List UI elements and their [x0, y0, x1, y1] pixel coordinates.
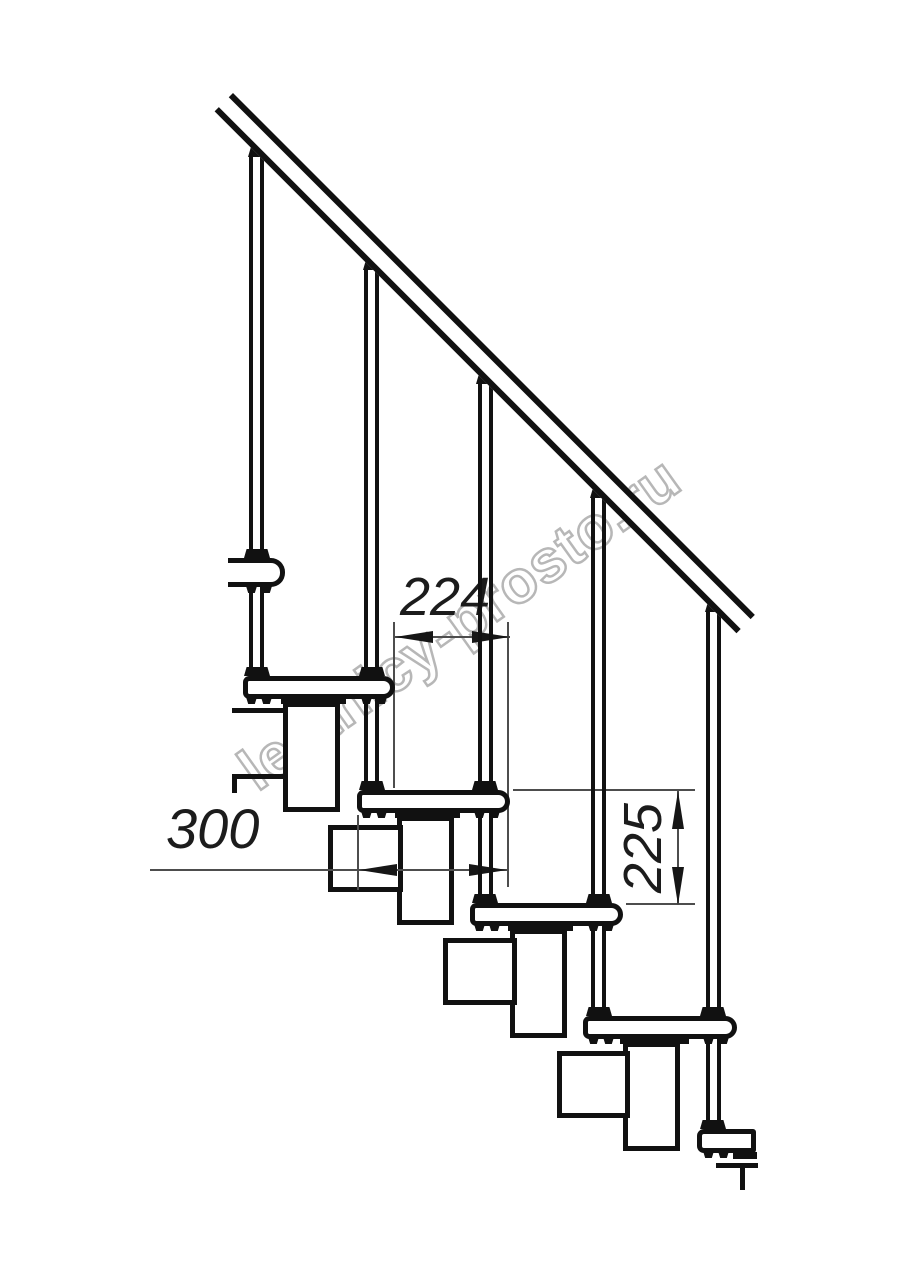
baluster-5 [706, 610, 721, 1129]
staircase-drawing: lestnicy-prosto.ru 224 300 225 [0, 0, 914, 1280]
lower-module-cut-tick [740, 1168, 745, 1190]
lower-module-cut-top-line [716, 1163, 758, 1168]
spine-connector-module-3 [557, 1051, 630, 1118]
baluster-3-tread-3-cap [472, 894, 498, 903]
baluster-2-tread-2-cap [359, 781, 385, 790]
arrowhead-225-up [672, 791, 684, 829]
tread-3-mount-plate [508, 925, 573, 931]
spine-tube-module-3 [510, 929, 567, 1038]
tread-2-under-flange [376, 811, 387, 818]
dim-label-riser-height: 225 [615, 793, 671, 903]
ext-line-300-left [357, 815, 359, 890]
baluster-1-tread-0-cap [244, 549, 270, 558]
baluster-3-tread-2-cap [472, 781, 498, 790]
baluster-1 [249, 155, 264, 676]
upper-module-cut-bottom-line [232, 774, 288, 779]
tread-1 [243, 676, 395, 699]
tread-5-under-flange [703, 1151, 714, 1158]
tread-4-under-flange [588, 1037, 599, 1044]
tread-2 [357, 790, 510, 813]
tread-5-truncated [697, 1129, 756, 1153]
ext-line-225-bottom [626, 903, 695, 905]
upper-module-cut-top-line [232, 708, 288, 713]
baluster-3 [478, 382, 493, 903]
dim-label-tread-run: 224 [400, 566, 490, 628]
tread-2-under-flange [361, 811, 372, 818]
tread-4-under-flange [603, 1037, 614, 1044]
baluster-4-tread-3-cap [586, 894, 612, 903]
tread-0-truncated [228, 558, 285, 587]
dim-label-tread-depth: 300 [166, 796, 259, 861]
tread-3-under-flange [489, 924, 500, 931]
tread-3-under-flange [474, 924, 485, 931]
baluster-4-tread-4-cap [586, 1007, 612, 1016]
baluster-1-tread-1-cap [244, 667, 270, 676]
tread-5-mount-plate [733, 1152, 757, 1159]
baluster-5-tread-5-cap [700, 1120, 726, 1129]
baluster-5-tread-4-cap [700, 1007, 726, 1016]
spine-tube-module-1 [283, 702, 340, 812]
tread-2-mount-plate [395, 812, 460, 818]
tread-4-mount-plate [620, 1038, 689, 1044]
baluster-2 [364, 268, 379, 790]
tread-5-under-flange [718, 1151, 729, 1158]
upper-module-cut-tick [232, 779, 237, 793]
baluster-4 [591, 496, 606, 1016]
arrowhead-225-down [672, 867, 684, 905]
tread-1-under-flange [246, 697, 257, 704]
spine-tube-module-4 [623, 1042, 680, 1151]
tread-1-under-flange [261, 697, 272, 704]
ext-line-224-right [507, 622, 509, 887]
dim-line-300 [150, 869, 507, 871]
spine-connector-module-1 [328, 825, 403, 892]
ext-line-224-left [393, 622, 395, 788]
baluster-2-tread-1-cap [359, 667, 385, 676]
tread-1-mount-plate [281, 698, 346, 704]
tread-4 [583, 1016, 737, 1039]
spine-connector-module-2 [443, 938, 517, 1005]
tread-3 [470, 903, 623, 926]
